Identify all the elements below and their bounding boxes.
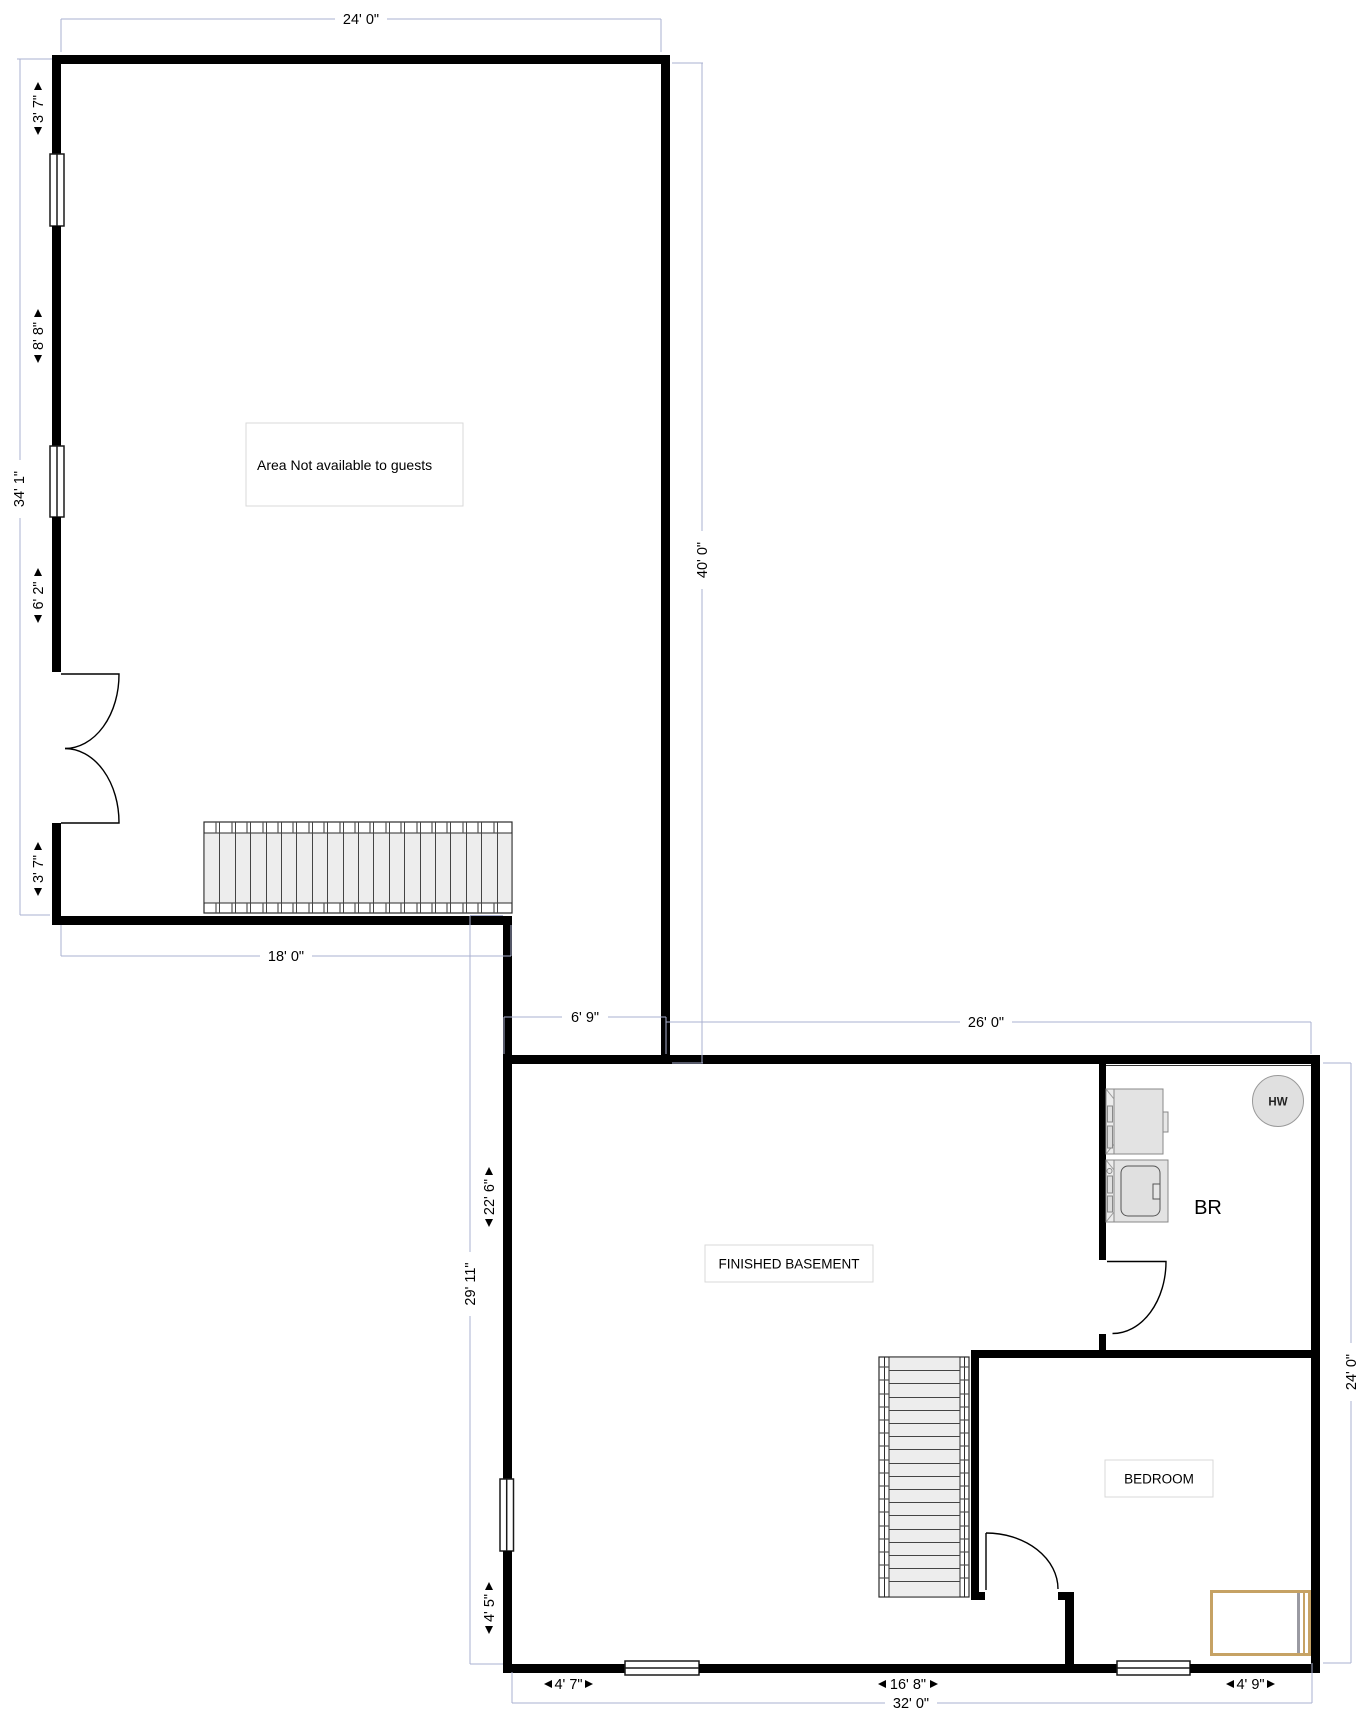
svg-text:24' 0": 24' 0" xyxy=(343,12,379,28)
svg-text:3' 7": 3' 7" xyxy=(31,855,47,883)
svg-text:BEDROOM: BEDROOM xyxy=(1124,1472,1194,1487)
svg-text:29' 11": 29' 11" xyxy=(463,1262,479,1305)
svg-text:4' 9": 4' 9" xyxy=(1236,1677,1264,1693)
svg-text:26' 0": 26' 0" xyxy=(968,1015,1004,1031)
svg-text:34' 1": 34' 1" xyxy=(12,471,28,507)
svg-text:HW: HW xyxy=(1268,1097,1287,1109)
svg-text:6' 2": 6' 2" xyxy=(31,581,47,609)
svg-text:24' 0": 24' 0" xyxy=(1344,1354,1360,1390)
svg-text:18' 0": 18' 0" xyxy=(268,949,304,965)
svg-text:40' 0": 40' 0" xyxy=(695,542,711,578)
svg-text:4' 7": 4' 7" xyxy=(554,1677,582,1693)
svg-text:FINISHED BASEMENT: FINISHED BASEMENT xyxy=(718,1257,859,1272)
svg-text:32' 0": 32' 0" xyxy=(893,1696,929,1712)
svg-text:22' 6": 22' 6" xyxy=(482,1179,498,1215)
svg-text:16' 8": 16' 8" xyxy=(890,1677,926,1693)
svg-text:3' 7": 3' 7" xyxy=(31,95,47,123)
svg-text:4' 5": 4' 5" xyxy=(482,1594,498,1622)
svg-text:8' 8": 8' 8" xyxy=(31,322,47,350)
svg-text:6' 9": 6' 9" xyxy=(571,1010,599,1026)
svg-text:BR: BR xyxy=(1194,1197,1222,1219)
svg-text:Area Not available to guests: Area Not available to guests xyxy=(257,457,432,473)
